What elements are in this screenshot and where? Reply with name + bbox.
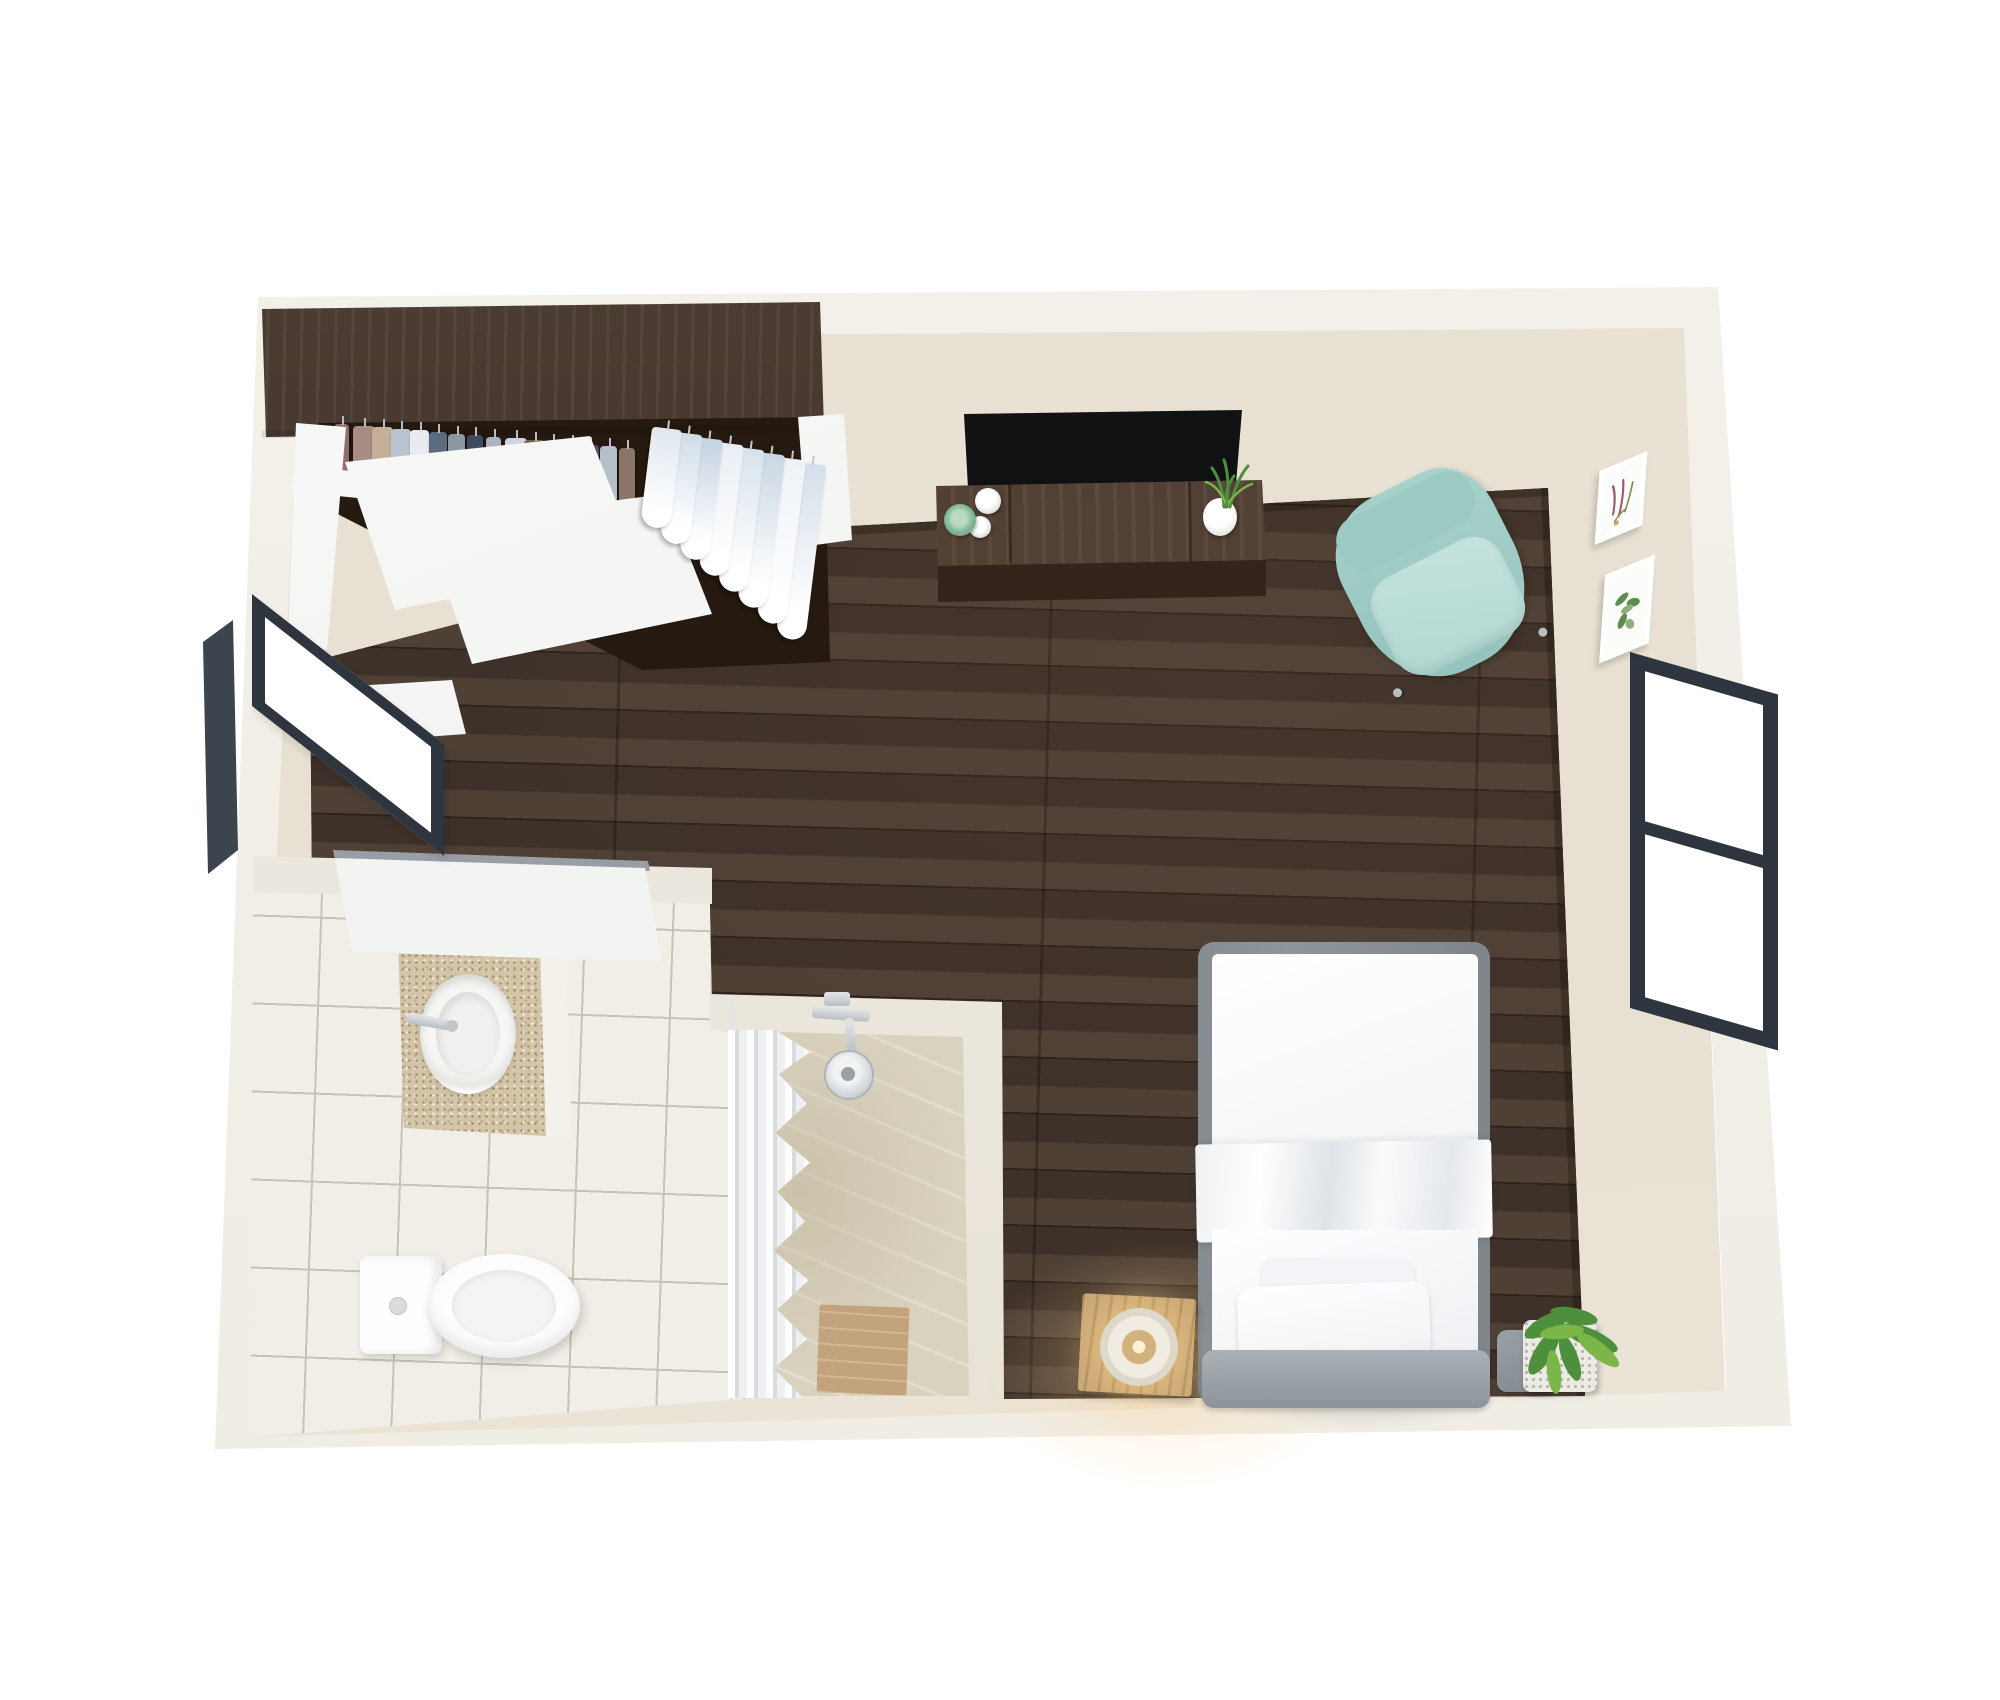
green-cup-icon	[944, 504, 976, 536]
shower-head-center	[841, 1067, 855, 1081]
lamp-icon	[1100, 1308, 1178, 1386]
wall-art-print	[1604, 561, 1649, 656]
floor-plant-icon	[1478, 1286, 1658, 1416]
shower-wood-bench	[816, 1304, 909, 1395]
bed-sheet-fold	[1195, 1139, 1493, 1242]
sink-basin	[436, 992, 500, 1076]
candle-icon	[975, 488, 1001, 514]
bed-headboard	[1202, 1350, 1490, 1408]
console-plant-icon	[1194, 452, 1264, 512]
floor-plan-render	[0, 0, 2000, 1700]
window-mullion	[1645, 821, 1763, 868]
shower-valve	[824, 992, 850, 1006]
window-right	[1630, 652, 1778, 1050]
toilet-seat	[452, 1270, 556, 1342]
wall-art-print	[1600, 458, 1642, 538]
faucet-base	[446, 1020, 458, 1032]
toilet-flush-button	[389, 1297, 407, 1315]
